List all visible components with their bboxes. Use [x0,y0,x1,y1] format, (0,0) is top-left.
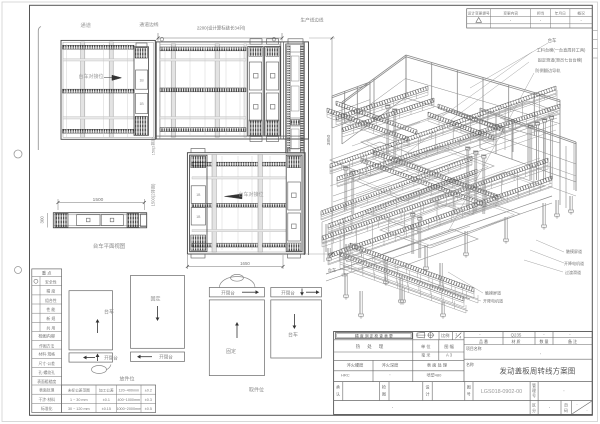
svg-text:1B: 1B [140,79,145,83]
svg-text:1500(2排距): 1500(2排距) [150,183,157,206]
svg-text:±0.15: ±0.15 [102,407,111,411]
svg-text:过渡滑道: 过渡滑道 [565,269,581,275]
svg-text:120~400mm: 120~400mm [118,389,139,393]
svg-text:性 能: 性 能 [46,307,55,312]
svg-text:·: · [586,408,588,413]
svg-text:1500: 1500 [93,197,104,203]
svg-text:开閉台: 开閉台 [104,355,118,362]
svg-text:·: · [576,402,578,407]
svg-text:码: 码 [564,408,568,413]
svg-text:安全性: 安全性 [45,280,57,285]
svg-text:LGS018-0902-00: LGS018-0902-00 [481,389,522,395]
svg-text:表面处理: 表面处理 [39,388,54,393]
svg-text:备 注: 备 注 [568,338,577,344]
svg-text:尺寸·公差: 尺寸·公差 [38,361,55,366]
svg-text:检: 检 [382,384,386,390]
svg-text:承: 承 [336,384,340,390]
svg-text:1000~2000mm: 1000~2000mm [116,407,141,411]
svg-text:开閉台: 开閉台 [281,290,295,297]
svg-text:4: 4 [459,335,461,339]
svg-text:作图方法: 作图方法 [39,343,54,348]
svg-text:项目名称: 项目名称 [466,346,482,351]
svg-text:品 番: 品 番 [479,338,488,344]
svg-text:标准化: 标准化 [41,406,53,411]
svg-text:表 面 处 理: 表 面 处 理 [427,362,448,369]
svg-text:表面粗糙度: 表面粗糙度 [37,379,56,384]
svg-text:号: 号 [532,393,536,398]
svg-text:通道: 通道 [81,21,91,29]
svg-text:分: 分 [532,408,536,413]
svg-text:取件位: 取件位 [249,387,264,394]
svg-text:概况: 概况 [577,10,585,15]
svg-text:孔·螺纹孔: 孔·螺纹孔 [38,370,55,375]
svg-text:1B: 1B [196,215,201,219]
svg-text:毫 米: 毫 米 [421,352,430,358]
svg-text:未标公差范围: 未标公差范围 [68,388,90,393]
svg-text:管: 管 [532,383,536,388]
svg-text:图: 图 [467,384,471,390]
svg-text:台车: 台车 [328,267,336,274]
svg-text:生产线边线: 生产线边线 [301,17,324,24]
svg-text:触摸屏道: 触摸屏道 [485,290,501,296]
svg-text:区: 区 [532,404,536,408]
svg-text:150(2排距): 150(2排距) [151,136,156,155]
svg-text:HRC: HRC [341,373,350,378]
svg-text:1 ~ 30 mm: 1 ~ 30 mm [70,398,88,402]
svg-text:图: 图 [382,391,386,397]
svg-text:加工公差: 加工公差 [99,388,114,393]
svg-text:材 质: 材 质 [511,338,520,344]
svg-text:理: 理 [532,388,536,393]
svg-text:材料·规格: 材料·规格 [38,352,55,357]
svg-text:新 规: 新 规 [46,316,55,321]
svg-text:±0.2: ±0.2 [145,389,152,393]
svg-text:±0.1: ±0.1 [103,398,110,402]
svg-text:台车: 台车 [548,37,557,44]
svg-text:台车: 台车 [104,309,114,316]
svg-text:300: 300 [40,216,45,224]
svg-text:1650: 1650 [240,261,250,266]
svg-text:固定: 固定 [226,348,236,355]
svg-text:开閉台: 开閉台 [221,290,235,297]
svg-text:共 用: 共 用 [46,325,55,330]
svg-text:固定: 固定 [150,296,160,303]
svg-text:热 处 理: 热 处 理 [356,343,387,350]
svg-text:放件位: 放件位 [119,376,134,383]
svg-text:号: 号 [467,391,471,397]
svg-text:数 量: 数 量 [539,338,548,344]
svg-text:通道边线: 通道边线 [139,21,158,28]
svg-text:精 度 测 定 检 查 表 要: 精 度 测 定 检 查 表 要 [355,333,393,338]
svg-text:设计变更提号: 设计变更提号 [468,10,490,15]
svg-text:台车平面视图: 台车平面视图 [93,242,125,250]
svg-text:防倒翻边导轨: 防倒翻边导轨 [535,67,561,74]
svg-text:400~1000mm: 400~1000mm [117,398,140,402]
svg-text:担当: 担当 [537,10,545,15]
svg-text:淬火硬度: 淬火硬度 [347,362,365,369]
svg-text:开降电机道: 开降电机道 [483,298,503,304]
svg-text:30 ~ 120 mm: 30 ~ 120 mm [68,407,90,411]
svg-text:年月日: 年月日 [555,10,566,15]
svg-text:名称: 名称 [466,362,474,367]
svg-text:固定滑道(滑员七台台模): 固定滑道(滑员七台台模) [538,57,583,64]
svg-text:单 位: 单 位 [421,343,431,350]
svg-text:干涉·材料: 干涉·材料 [38,397,55,402]
svg-text:检图内容: 检图内容 [38,333,55,340]
svg-text:页: 页 [564,403,568,408]
svg-text:组合性: 组合性 [45,298,57,303]
svg-text:1B: 1B [196,193,201,197]
svg-text:喷塑480: 喷塑480 [427,372,442,378]
svg-text:1B: 1B [140,102,145,106]
svg-text:A 3: A 3 [446,353,453,358]
svg-text:认: 认 [336,391,340,397]
svg-text:开閉台: 开閉台 [159,354,173,361]
svg-text:±0.3: ±0.3 [145,398,152,402]
svg-text:精 度: 精 度 [46,289,55,294]
svg-text:开降电机道: 开降电机道 [564,260,584,266]
svg-text:计: 计 [426,391,430,397]
svg-text:重 点: 重 点 [42,269,52,276]
svg-text:台车: 台车 [288,332,298,339]
svg-text:比例: 比例 [441,332,449,339]
svg-text:淬火深度: 淬火深度 [382,362,400,369]
svg-text:±0.5: ±0.5 [145,407,152,411]
svg-text:台车对接位: 台车对接位 [78,73,103,80]
svg-text:图 幅: 图 幅 [444,343,454,350]
svg-text:变更内容: 变更内容 [503,10,518,15]
svg-text:Q235: Q235 [511,332,522,337]
svg-text:触摸屏道: 触摸屏道 [566,248,582,254]
svg-text:设: 设 [426,384,430,390]
svg-text:发动盖板周转线方案图: 发动盖板周转线方案图 [500,367,576,376]
svg-text:工料台模(一台直周转工两): 工料台模(一台直周转工两) [537,47,586,54]
svg-text:1: 1 [455,333,457,337]
svg-text:2200(设计算标链长34列): 2200(设计算标链长34列) [197,25,246,32]
svg-text:3850: 3850 [326,134,332,145]
svg-text:台车对接位: 台车对接位 [238,191,263,198]
